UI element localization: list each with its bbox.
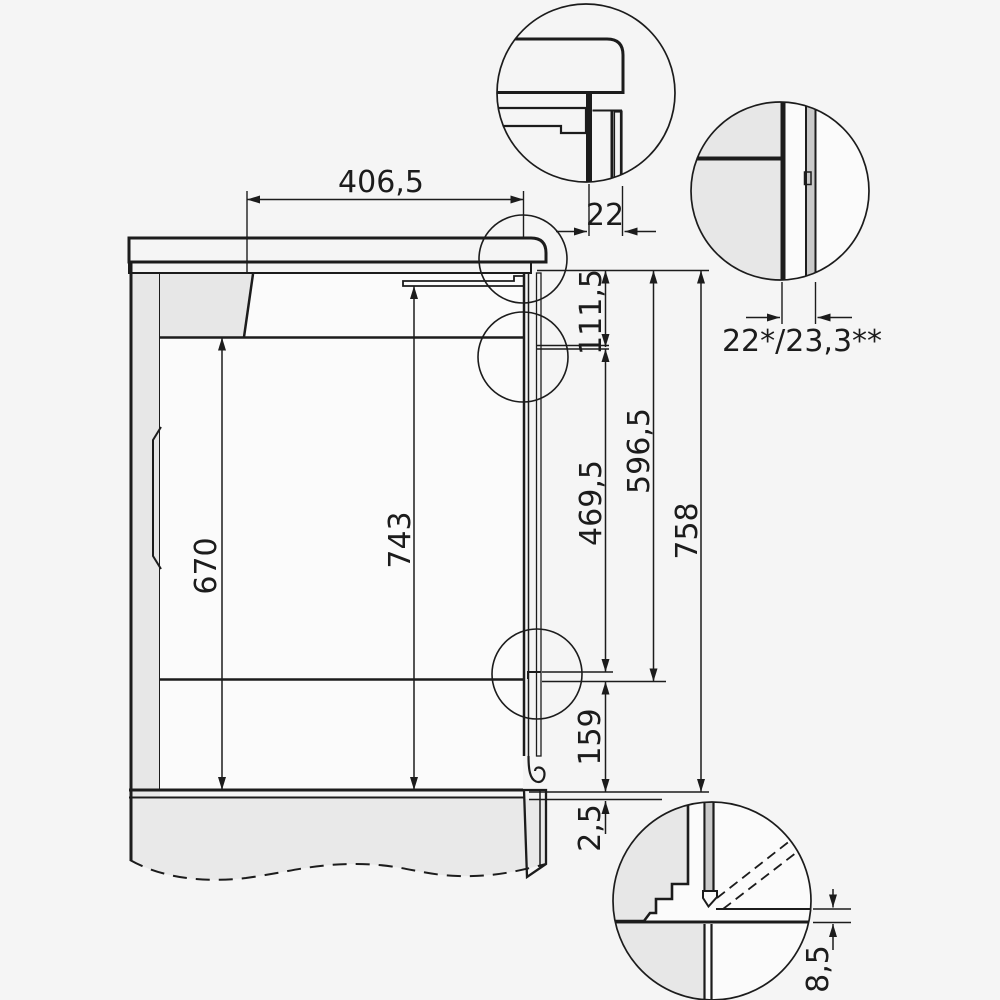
oven-top-area — [244, 274, 523, 337]
dim-label-159: 159 — [573, 708, 608, 765]
dim-label-743: 743 — [383, 511, 418, 568]
detail-bottom-plinth — [610, 924, 704, 1000]
dim-label-596: 596,5 — [622, 408, 657, 494]
dim-label-406: 406,5 — [338, 165, 424, 200]
front-step-profile — [528, 672, 541, 679]
dim-label-469: 469,5 — [574, 460, 609, 546]
plinth-area — [130, 799, 546, 880]
detail-bottom-door-glass — [706, 799, 713, 891]
detail-right-panel — [688, 99, 783, 285]
dim-label-111: 111,5 — [574, 269, 609, 355]
worktop-under-strip — [129, 262, 531, 273]
diagram-svg: 406,5 22 22*/23,3** 111,5 469,5 159 2,5 — [0, 0, 1000, 1000]
dim-label-8-5: 8,5 — [801, 945, 836, 993]
cabinet-left-wall — [130, 273, 160, 797]
top-grey-wedge — [160, 273, 253, 337]
dim-label-2-5: 2,5 — [573, 804, 608, 852]
installation-diagram: 406,5 22 22*/23,3** 111,5 469,5 159 2,5 — [0, 0, 1000, 1000]
dim-label-panel: 22*/23,3** — [722, 324, 882, 359]
door-bottom-hook — [529, 756, 545, 782]
detail-right-circle — [688, 99, 869, 285]
dim-label-22: 22 — [586, 198, 624, 233]
detail-right-glass — [806, 100, 816, 284]
detail-top-circle — [486, 4, 675, 182]
dim-label-670: 670 — [189, 537, 224, 594]
dim-label-758: 758 — [670, 502, 705, 559]
